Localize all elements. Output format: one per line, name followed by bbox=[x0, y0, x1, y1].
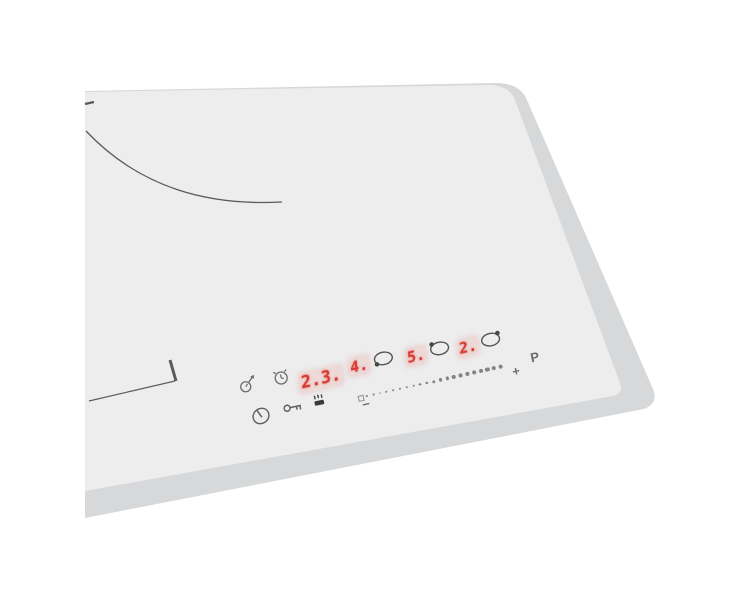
slider-dot[interactable] bbox=[445, 376, 449, 380]
slider-dot[interactable] bbox=[492, 366, 497, 371]
slider-dot[interactable] bbox=[458, 373, 462, 377]
slider-dot[interactable] bbox=[386, 390, 388, 392]
slider-dot[interactable] bbox=[392, 389, 395, 392]
slider-dot[interactable] bbox=[439, 378, 443, 382]
slider-dot[interactable] bbox=[478, 369, 483, 374]
slider-dot[interactable] bbox=[465, 372, 469, 376]
slider-dot[interactable] bbox=[412, 384, 415, 387]
kitchen-timer-icon[interactable] bbox=[269, 365, 293, 389]
slider-dot[interactable] bbox=[472, 370, 477, 375]
slider-dot[interactable] bbox=[372, 394, 374, 396]
hob-surface-graphic bbox=[0, 0, 734, 600]
slider-dot[interactable] bbox=[405, 386, 408, 389]
slider-dot[interactable] bbox=[399, 387, 402, 390]
induction-hob-photo: 2.3. 4. 5. 2. − + P bbox=[0, 0, 734, 600]
slider-dot[interactable] bbox=[419, 383, 422, 386]
slider-dot[interactable] bbox=[498, 364, 503, 369]
slider-dot[interactable] bbox=[432, 380, 436, 384]
slider-dot[interactable] bbox=[452, 375, 456, 379]
slider-dot[interactable] bbox=[485, 367, 490, 372]
slider-dot[interactable] bbox=[425, 381, 428, 384]
pot-boil-icon[interactable] bbox=[310, 391, 329, 410]
slider-dot[interactable] bbox=[379, 392, 381, 394]
